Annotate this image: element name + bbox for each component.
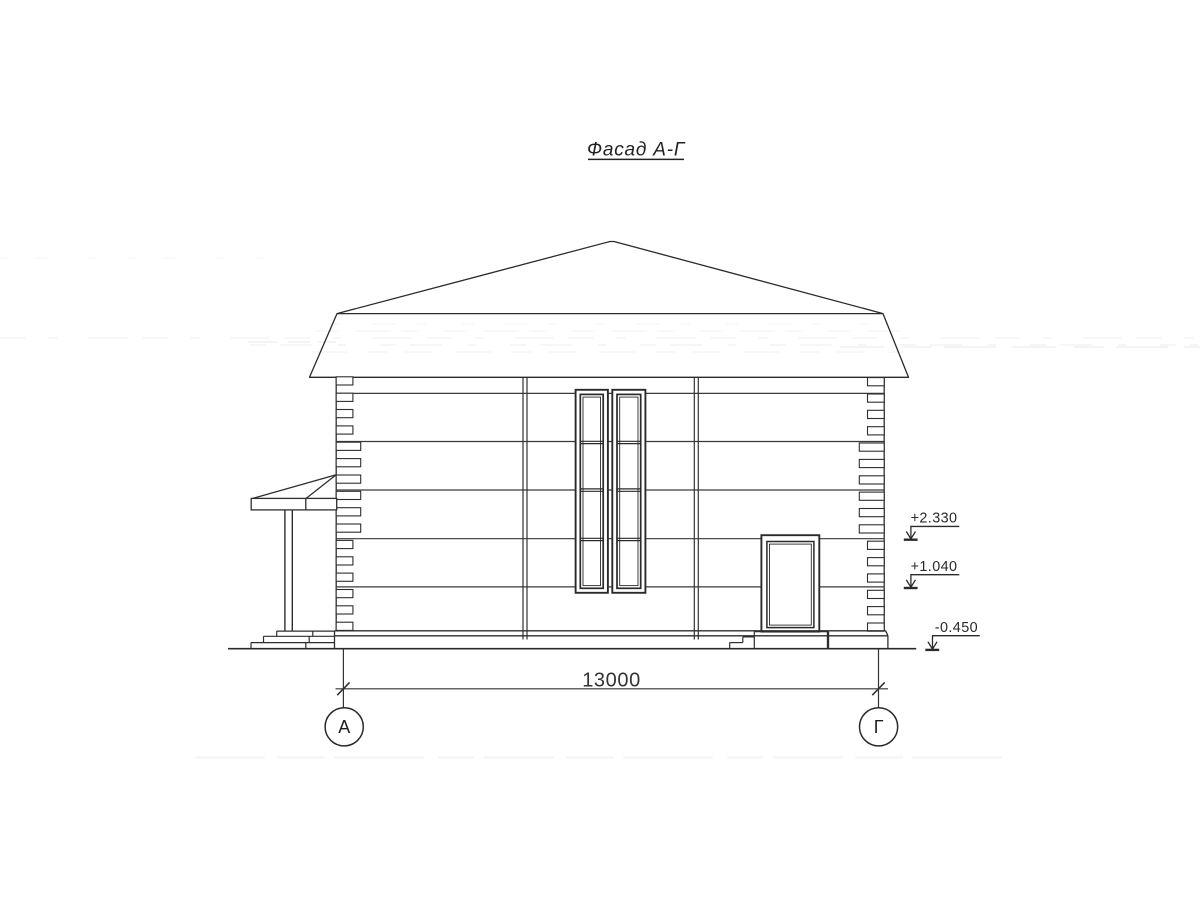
svg-text:-0.450: -0.450 [935,620,978,636]
svg-text:13000: 13000 [582,669,641,691]
svg-text:Г: Г [874,717,884,737]
svg-text:А: А [338,717,350,737]
svg-text:Фасад А-Г: Фасад А-Г [587,139,686,160]
svg-text:+1.040: +1.040 [911,559,958,575]
svg-text:+2.330: +2.330 [911,511,958,527]
